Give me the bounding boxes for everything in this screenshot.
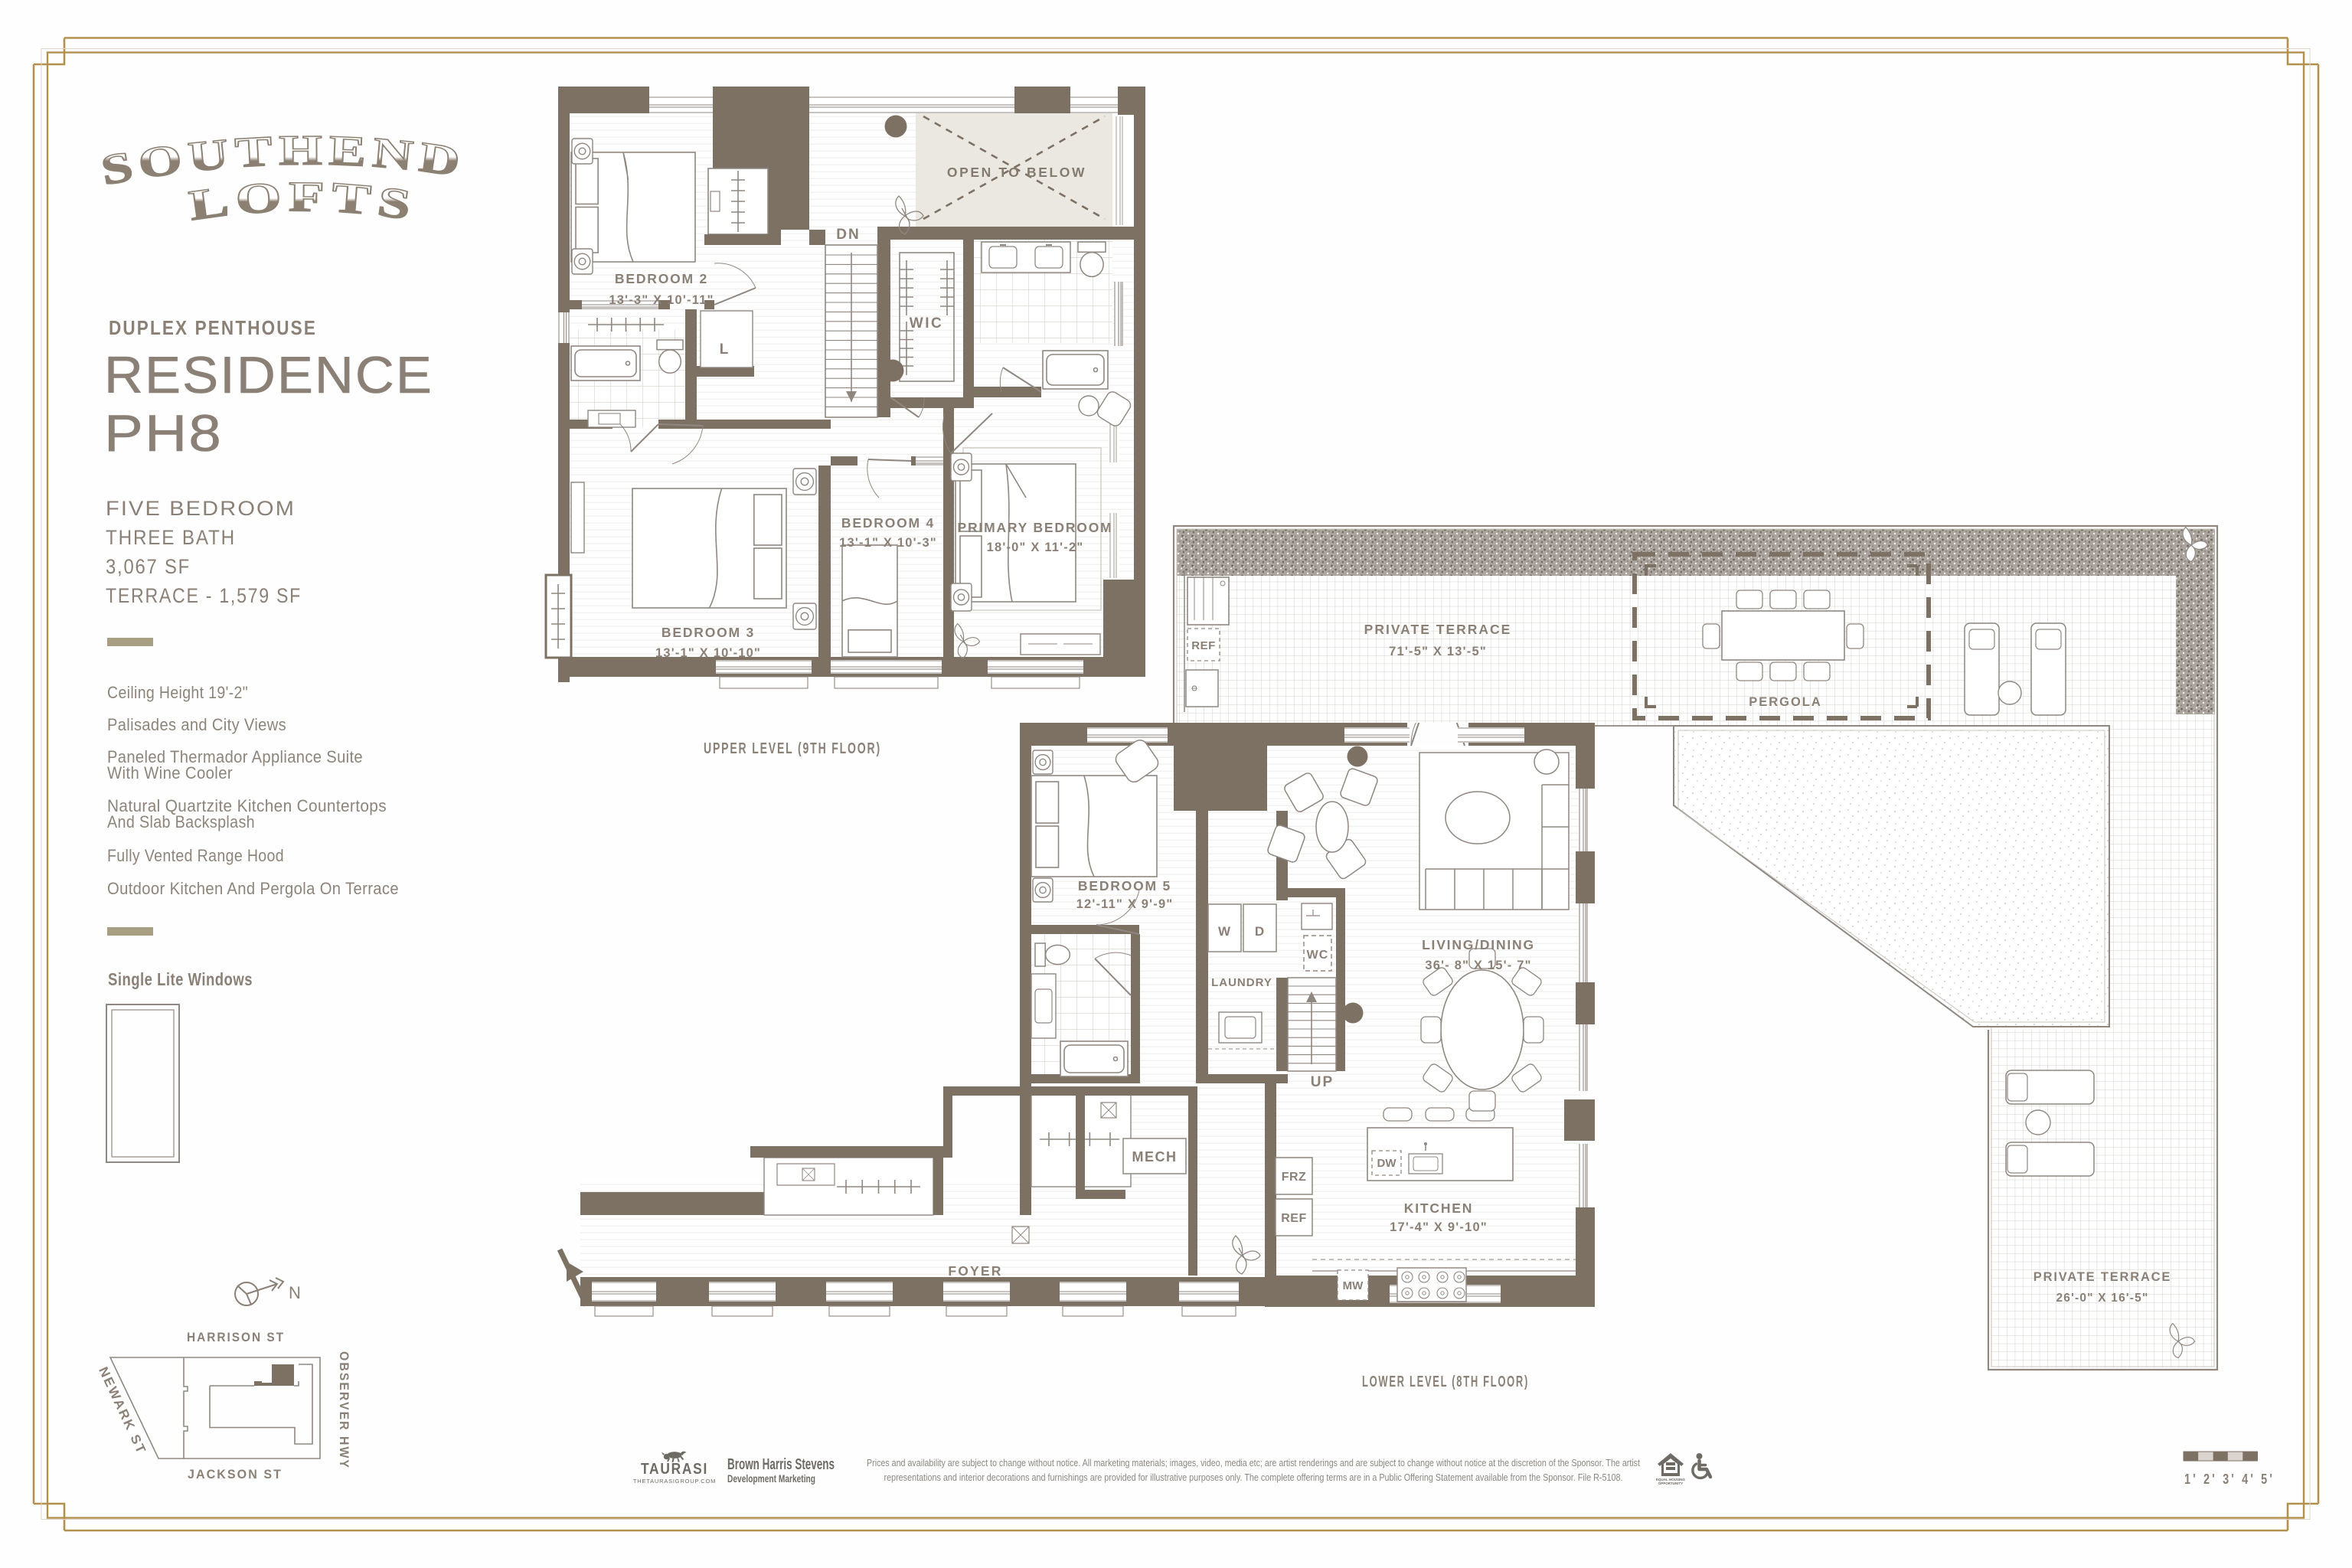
svg-text:Palisades and City Views: Palisades and City Views: [107, 715, 286, 734]
svg-text:36'- 8" X 15'- 7": 36'- 8" X 15'- 7": [1425, 959, 1531, 972]
svg-text:DN: DN: [836, 227, 860, 243]
svg-text:HARRISON ST: HARRISON ST: [187, 1330, 285, 1344]
svg-text:13'-1" X 10'-3": 13'-1" X 10'-3": [839, 536, 937, 550]
svg-text:Fully Vented Range Hood: Fully Vented Range Hood: [107, 846, 284, 865]
svg-text:OPPORTUNITY: OPPORTUNITY: [1658, 1481, 1684, 1485]
svg-text:LAUNDRY: LAUNDRY: [1211, 976, 1272, 989]
svg-text:With Wine Cooler: With Wine Cooler: [107, 763, 233, 782]
svg-text:12'-11" X 9'-9": 12'-11" X 9'-9": [1076, 897, 1174, 911]
svg-text:PH8: PH8: [104, 404, 223, 462]
svg-text:18'-0" X 11'-2": 18'-0" X 11'-2": [987, 541, 1084, 554]
svg-text:FRZ: FRZ: [1282, 1171, 1307, 1184]
svg-text:WC: WC: [1307, 949, 1329, 962]
svg-text:26'-0" X 16'-5": 26'-0" X 16'-5": [2056, 1292, 2148, 1305]
svg-text:REF: REF: [1191, 639, 1216, 652]
svg-text:FIVE BEDROOM: FIVE BEDROOM: [106, 497, 296, 520]
svg-text:13'-1" X 10'-10": 13'-1" X 10'-10": [655, 646, 761, 660]
svg-text:BEDROOM 5: BEDROOM 5: [1078, 878, 1171, 893]
svg-text:BEDROOM 3: BEDROOM 3: [661, 625, 755, 640]
svg-text:MECH: MECH: [1132, 1149, 1178, 1165]
svg-text:THREE BATH: THREE BATH: [106, 526, 236, 549]
svg-text:D: D: [1255, 924, 1264, 939]
svg-text:MW: MW: [1343, 1279, 1364, 1292]
svg-text:Outdoor Kitchen And Pergola On: Outdoor Kitchen And Pergola On Terrace: [107, 879, 399, 898]
svg-text:And Slab Backsplash: And Slab Backsplash: [107, 812, 255, 831]
svg-text:RESIDENCE: RESIDENCE: [104, 346, 433, 404]
svg-text:Single Lite Windows: Single Lite Windows: [108, 969, 253, 989]
svg-text:L: L: [720, 341, 730, 358]
svg-text:N: N: [289, 1283, 301, 1302]
svg-text:UPPER LEVEL (9TH FLOOR): UPPER LEVEL (9TH FLOOR): [704, 740, 881, 757]
svg-text:OBSERVER HWY: OBSERVER HWY: [337, 1351, 351, 1469]
svg-text:PRIMARY BEDROOM: PRIMARY BEDROOM: [958, 520, 1113, 535]
svg-text:LOWER LEVEL (8TH FLOOR): LOWER LEVEL (8TH FLOOR): [1362, 1374, 1529, 1390]
svg-text:W: W: [1218, 924, 1231, 939]
svg-text:TERRACE - 1,579 SF: TERRACE - 1,579 SF: [106, 584, 302, 607]
svg-text:JACKSON ST: JACKSON ST: [188, 1467, 283, 1481]
svg-text:Brown Harris Stevens: Brown Harris Stevens: [727, 1456, 835, 1473]
svg-text:UP: UP: [1311, 1074, 1334, 1090]
svg-text:3,067 SF: 3,067 SF: [106, 555, 191, 578]
svg-text:PERGOLA: PERGOLA: [1749, 695, 1822, 709]
svg-text:Prices and availability are su: Prices and availability are subject to c…: [867, 1457, 1640, 1468]
svg-text:13'-3" X 10'-11": 13'-3" X 10'-11": [609, 293, 714, 307]
svg-text:TAURASI: TAURASI: [641, 1461, 708, 1478]
svg-text:OPEN TO BELOW: OPEN TO BELOW: [947, 165, 1086, 180]
svg-text:representations and interior d: representations and interior decorations…: [884, 1472, 1623, 1483]
svg-text:DUPLEX PENTHOUSE: DUPLEX PENTHOUSE: [109, 316, 317, 339]
svg-text:PRIVATE TERRACE: PRIVATE TERRACE: [1364, 622, 1512, 637]
svg-text:DW: DW: [1377, 1157, 1397, 1170]
svg-text:REF: REF: [1281, 1212, 1307, 1225]
svg-text:BEDROOM 4: BEDROOM 4: [841, 515, 935, 531]
svg-text:THETAURASIGROUP.COM: THETAURASIGROUP.COM: [633, 1478, 716, 1485]
svg-text:Development Marketing: Development Marketing: [727, 1473, 815, 1485]
svg-text:71'-5" X 13'-5": 71'-5" X 13'-5": [1389, 645, 1487, 658]
svg-text:17'-4" X 9'-10": 17'-4" X 9'-10": [1390, 1220, 1488, 1234]
svg-text:WIC: WIC: [910, 315, 943, 332]
svg-text:LIVING/DINING: LIVING/DINING: [1422, 937, 1535, 952]
svg-text:Ceiling Height 19'-2": Ceiling Height 19'-2": [107, 683, 248, 702]
svg-text:FOYER: FOYER: [948, 1263, 1002, 1279]
svg-text:KITCHEN: KITCHEN: [1404, 1200, 1473, 1216]
svg-text:PRIVATE TERRACE: PRIVATE TERRACE: [2033, 1270, 2171, 1284]
svg-text:1' 2' 3' 4' 5': 1' 2' 3' 4' 5': [2184, 1472, 2275, 1487]
svg-text:BEDROOM 2: BEDROOM 2: [615, 271, 708, 286]
